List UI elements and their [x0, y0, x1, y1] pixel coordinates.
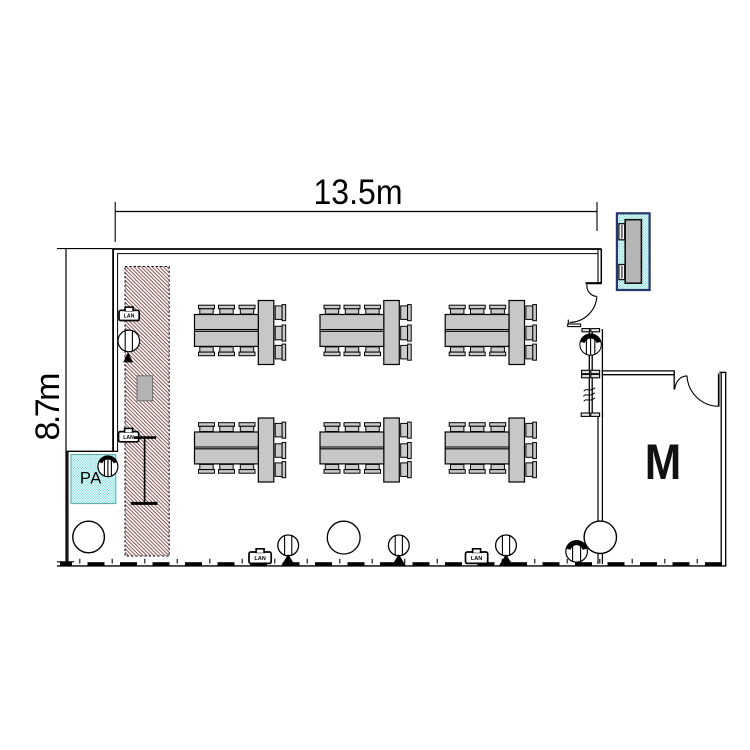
svg-text:13.5m: 13.5m — [314, 173, 403, 212]
svg-text:M: M — [645, 434, 682, 490]
svg-text:LAN: LAN — [471, 556, 483, 562]
svg-text:LAN: LAN — [124, 314, 135, 320]
svg-text:LAN: LAN — [254, 556, 266, 562]
svg-text:8.7m: 8.7m — [29, 373, 67, 441]
svg-text:LAN: LAN — [123, 435, 134, 441]
